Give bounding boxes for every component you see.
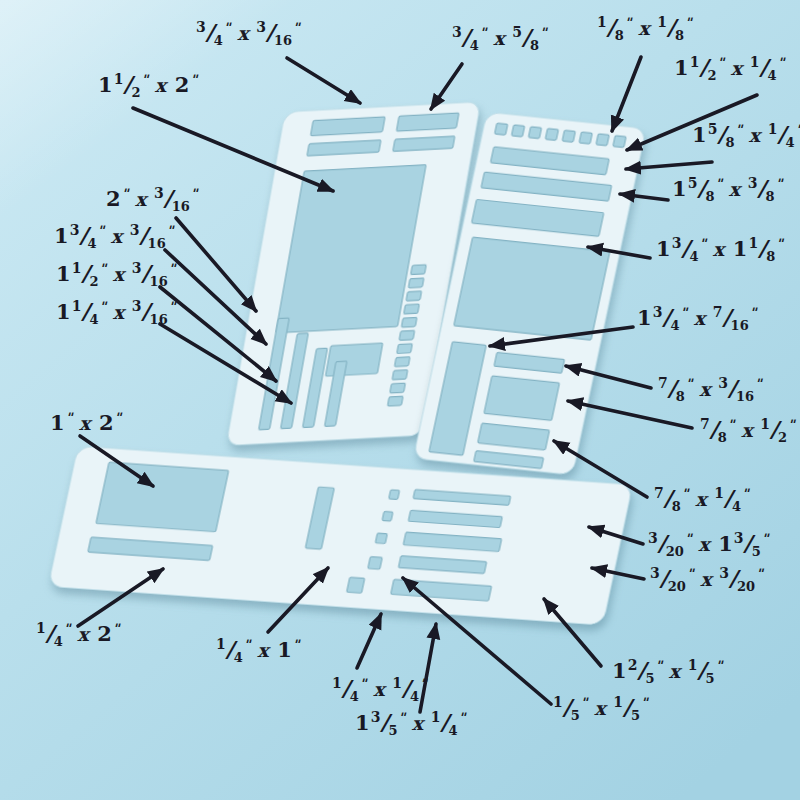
cutout <box>596 134 609 146</box>
cutout <box>401 317 417 327</box>
cutout <box>562 130 575 142</box>
stencil-dimension-diagram: 3/4" x 3/16"3/4" x 5/8"1/8" x 1/8"11/2" … <box>0 0 800 800</box>
cutout <box>311 117 386 136</box>
cutout <box>392 370 408 380</box>
cutout <box>408 278 424 288</box>
cutout <box>389 490 400 500</box>
cutout <box>511 125 524 137</box>
cutout <box>397 344 413 354</box>
cutout <box>96 462 229 532</box>
cutout <box>579 132 592 144</box>
annotated-stencil-photo: 3/4" x 3/16"3/4" x 5/8"1/8" x 1/8"11/2" … <box>0 0 800 800</box>
cutout <box>399 331 415 341</box>
cutout <box>396 113 459 131</box>
cutout <box>382 512 393 522</box>
cutout <box>454 237 610 340</box>
cutout <box>484 376 560 420</box>
cutout <box>495 123 508 135</box>
cutout <box>393 136 455 151</box>
dimension-label: 1/4" x 2" <box>36 620 121 649</box>
cutout <box>545 128 558 140</box>
cutout <box>411 265 427 275</box>
cutout <box>404 304 420 314</box>
cutout <box>390 383 406 393</box>
cutout <box>375 533 387 544</box>
cutout <box>613 136 626 148</box>
cutout <box>394 357 410 367</box>
cutout <box>528 127 541 139</box>
dimension-label: 1" x 2" <box>50 410 123 435</box>
cutout <box>368 557 382 570</box>
cutout <box>406 291 422 301</box>
cutout <box>347 577 365 593</box>
cutout <box>387 396 403 406</box>
dimension-label: 1/4" x 1" <box>216 636 301 665</box>
